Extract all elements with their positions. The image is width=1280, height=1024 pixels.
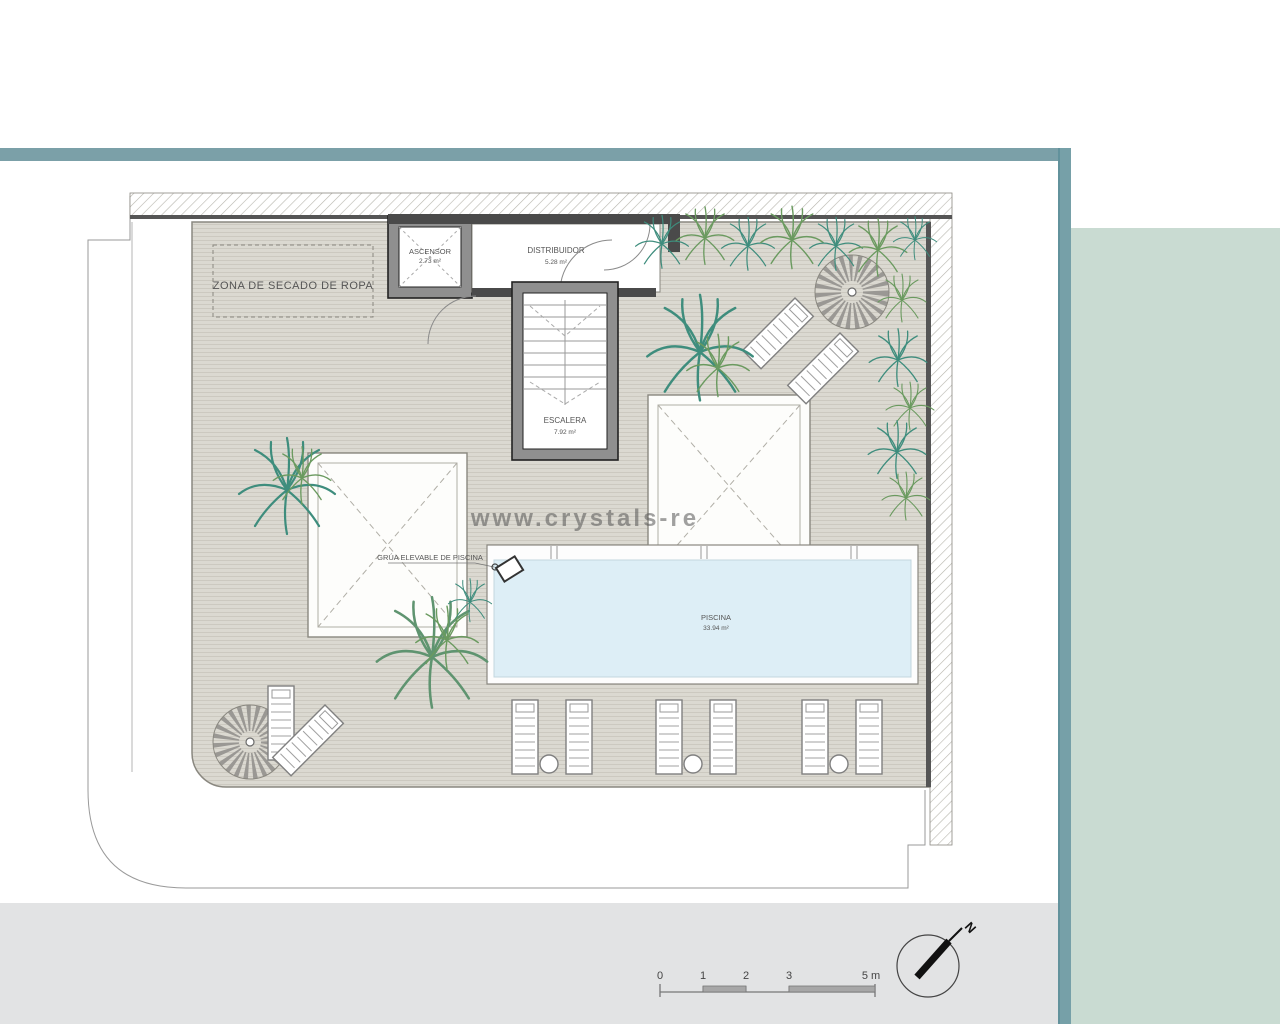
page: ZONA DE SECADO DE ROPA PISCINA [0, 0, 1280, 1024]
scale-tick-5m: 5 m [862, 970, 880, 982]
drying-zone-label: ZONA DE SECADO DE ROPA [213, 280, 374, 292]
scale-bar: 0 1 2 3 5 m [657, 970, 880, 997]
north-arrow-icon: N [897, 919, 979, 997]
hatch-strip-right [930, 218, 952, 845]
pool-area-label: 33.94 m² [703, 625, 729, 632]
skylight-left [308, 453, 467, 637]
elevator-area-label: 2.73 m² [419, 258, 442, 265]
sidebar-panel: PLANTA ÁTICO PLANTA 4 PLANTA 3 PLANTA 2 … [1071, 228, 1280, 1024]
elevator-room: ASCENSOR 2.73 m² [388, 216, 472, 298]
scale-tick-3: 3 [786, 970, 792, 982]
stairs-label: ESCALERA [544, 416, 587, 425]
footer-graphics: 0 1 2 3 5 m N [640, 905, 1058, 1024]
frame-vertical-bar [1058, 148, 1071, 1024]
distributor-area-label: 5.28 m² [545, 259, 568, 266]
pool: PISCINA 33.94 m² [487, 545, 918, 684]
stairwell: ESCALERA 7.92 m² [512, 282, 618, 460]
scale-tick-0: 0 [657, 970, 663, 982]
scale-tick-2: 2 [743, 970, 749, 982]
elevator-label: ASCENSOR [409, 247, 452, 256]
watermark: www.crystals-re [470, 505, 699, 532]
pool-hoist-label: GRÚA ELEVABLE DE PISCINA [377, 553, 483, 562]
scale-tick-1: 1 [700, 970, 706, 982]
stairs-area-label: 7.92 m² [554, 429, 577, 436]
north-label: N [962, 919, 979, 936]
frame-top-bar [0, 148, 1071, 161]
pool-label: PISCINA [701, 613, 731, 622]
